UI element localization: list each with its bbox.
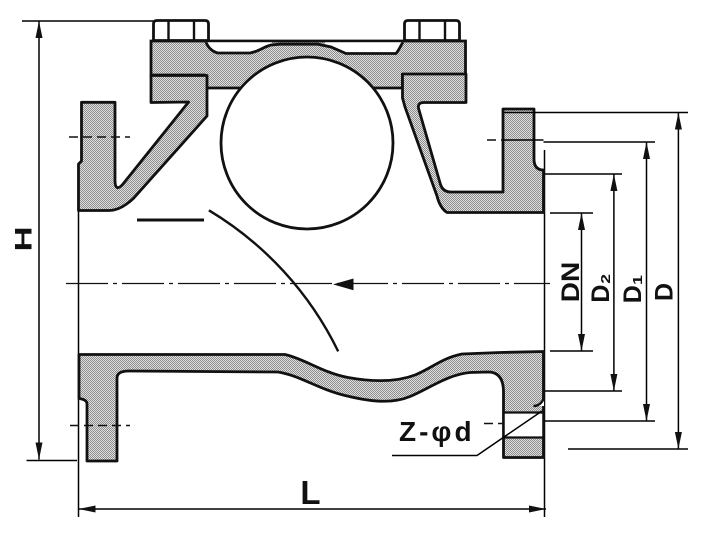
svg-text:H: H (11, 226, 37, 251)
svg-text:DN: DN (556, 262, 584, 302)
svg-text:D₂: D₂ (587, 273, 615, 302)
svg-text:Z-φd: Z-φd (399, 416, 475, 447)
svg-text:D₁: D₁ (619, 275, 647, 303)
svg-text:L: L (300, 474, 320, 511)
svg-text:D: D (651, 283, 679, 301)
